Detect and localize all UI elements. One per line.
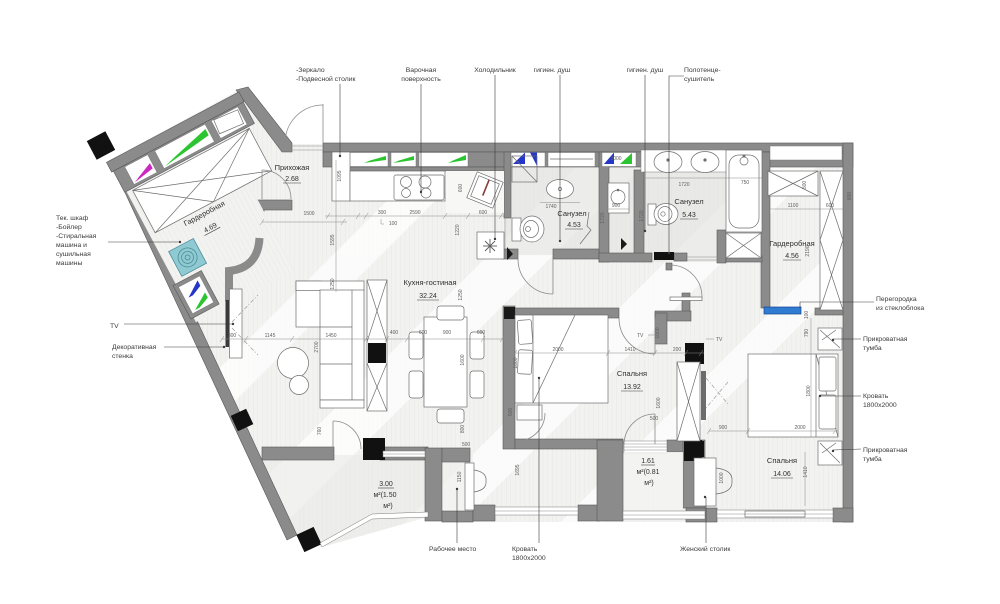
svg-text:Женский столик: Женский столик [680, 545, 730, 553]
svg-text:600: 600 [419, 330, 428, 336]
svg-text:TV: TV [716, 337, 723, 343]
svg-text:Тек. шкаф: Тек. шкаф [56, 215, 89, 222]
svg-text:2700: 2700 [314, 341, 320, 352]
svg-text:Кухня-гостиная: Кухня-гостиная [403, 278, 456, 287]
svg-text:1600: 1600 [656, 397, 662, 408]
svg-text:2000: 2000 [552, 347, 563, 353]
svg-text:900: 900 [443, 330, 452, 336]
svg-text:2190: 2190 [805, 245, 811, 256]
svg-text:1150: 1150 [457, 471, 463, 482]
svg-text:Холодильник: Холодильник [474, 67, 516, 74]
svg-text:сушитель: сушитель [684, 76, 715, 83]
svg-text:1095: 1095 [337, 170, 343, 181]
svg-text:м²): м²) [383, 503, 392, 510]
svg-text:4.53: 4.53 [567, 222, 581, 229]
svg-text:Санузел: Санузел [674, 197, 703, 206]
svg-text:200: 200 [673, 347, 682, 353]
svg-text:3000: 3000 [610, 156, 621, 162]
svg-text:400: 400 [390, 330, 399, 336]
svg-text:тумба: тумба [863, 344, 882, 352]
svg-text:Кровать: Кровать [512, 546, 538, 553]
svg-text:машина и: машина и [56, 242, 87, 249]
svg-text:-Бойлер: -Бойлер [56, 223, 82, 231]
svg-text:Спальня: Спальня [767, 456, 797, 465]
svg-text:1220: 1220 [455, 224, 461, 235]
svg-text:1145: 1145 [265, 333, 276, 339]
svg-text:800: 800 [460, 425, 466, 434]
svg-text:600: 600 [477, 330, 486, 336]
svg-text:900: 900 [612, 203, 621, 209]
svg-text:машины: машины [56, 260, 82, 267]
svg-text:600: 600 [458, 184, 464, 193]
svg-text:1410: 1410 [624, 347, 635, 353]
svg-text:600: 600 [826, 203, 835, 209]
svg-text:1595: 1595 [330, 234, 336, 245]
svg-text:1000: 1000 [655, 327, 661, 338]
svg-text:500: 500 [508, 408, 514, 417]
svg-text:Кровать: Кровать [863, 393, 889, 400]
svg-text:2000: 2000 [794, 425, 805, 431]
svg-text:300: 300 [378, 210, 387, 216]
svg-text:300: 300 [228, 333, 237, 339]
svg-text:1800х2000: 1800х2000 [512, 555, 546, 562]
svg-text:TV: TV [110, 323, 119, 330]
svg-text:1410: 1410 [803, 466, 809, 477]
svg-text:1.61: 1.61 [641, 458, 655, 465]
svg-text:5.43: 5.43 [682, 212, 696, 219]
svg-text:900: 900 [719, 425, 728, 431]
svg-text:Прикроватная: Прикроватная [863, 447, 908, 454]
svg-text:2590: 2590 [409, 210, 420, 216]
svg-text:из стеклоблока: из стеклоблока [876, 304, 924, 312]
svg-text:500: 500 [650, 416, 659, 422]
svg-text:Прикроватная: Прикроватная [863, 336, 908, 343]
svg-text:Санузел: Санузел [557, 209, 586, 218]
svg-text:1000: 1000 [719, 472, 725, 483]
svg-text:-Стиральная: -Стиральная [56, 233, 97, 240]
svg-text:поверхность: поверхность [401, 76, 441, 83]
svg-text:500: 500 [462, 442, 471, 448]
svg-text:-Зеркало: -Зеркало [296, 67, 325, 74]
svg-text:Спальня: Спальня [617, 369, 647, 378]
svg-text:Перегородка: Перегородка [876, 296, 917, 303]
svg-text:14.06: 14.06 [773, 471, 791, 478]
svg-text:Полотенце-: Полотенце- [684, 67, 721, 74]
svg-text:1250: 1250 [330, 278, 336, 289]
svg-text:1450: 1450 [325, 333, 336, 339]
svg-text:760: 760 [317, 427, 323, 436]
svg-text:м²(0.81: м²(0.81 [636, 469, 659, 476]
svg-text:1100: 1100 [788, 203, 799, 209]
svg-text:м²): м²) [644, 480, 653, 487]
svg-text:1720: 1720 [639, 210, 645, 221]
svg-text:1250: 1250 [458, 289, 464, 300]
svg-text:4.56: 4.56 [785, 253, 799, 260]
svg-text:3.00: 3.00 [379, 481, 393, 488]
svg-text:1500: 1500 [303, 211, 314, 217]
svg-text:м²(1.50: м²(1.50 [373, 492, 396, 499]
svg-text:100: 100 [389, 221, 398, 227]
svg-text:750: 750 [741, 180, 750, 186]
svg-text:1800х2000: 1800х2000 [863, 402, 897, 409]
svg-text:гигиен. душ: гигиен. душ [534, 67, 571, 74]
svg-text:Рабочее место: Рабочее место [429, 545, 476, 553]
svg-text:стенка: стенка [112, 353, 133, 360]
svg-text:100: 100 [804, 311, 810, 320]
svg-text:1695: 1695 [515, 464, 521, 475]
svg-text:2.68: 2.68 [285, 176, 299, 183]
svg-text:600: 600 [479, 210, 488, 216]
svg-text:сушильная: сушильная [56, 251, 91, 258]
svg-text:TV: TV [637, 333, 644, 339]
svg-text:-Подвесной столик: -Подвесной столик [296, 75, 356, 83]
svg-text:1740: 1740 [545, 204, 556, 210]
svg-text:1720: 1720 [600, 212, 606, 223]
svg-text:800: 800 [847, 192, 853, 201]
svg-text:790: 790 [804, 329, 810, 338]
svg-text:Варочная: Варочная [406, 67, 437, 74]
svg-text:13.92: 13.92 [623, 384, 641, 391]
svg-text:1600: 1600 [460, 354, 466, 365]
svg-text:гигиен. душ: гигиен. душ [627, 67, 664, 74]
svg-text:32.24: 32.24 [419, 293, 437, 300]
svg-text:тумба: тумба [863, 455, 882, 463]
svg-text:Прихожая: Прихожая [275, 163, 310, 172]
svg-text:500: 500 [802, 181, 808, 190]
svg-text:1720: 1720 [678, 182, 689, 188]
svg-text:Декоративная: Декоративная [112, 344, 157, 351]
